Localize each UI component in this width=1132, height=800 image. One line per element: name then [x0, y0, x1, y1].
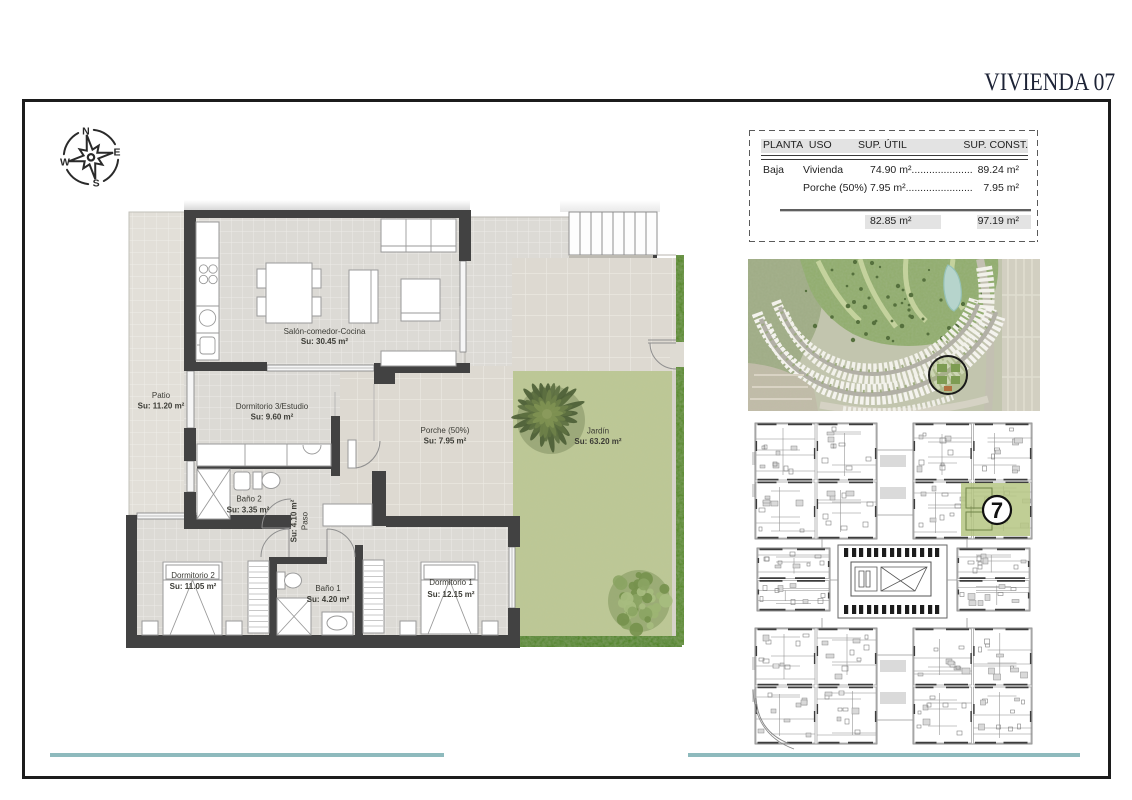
svg-text:Dormitorio 2: Dormitorio 2: [171, 571, 215, 580]
svg-text:Jardín: Jardín: [587, 427, 609, 436]
svg-text:Su: 4.20 m²: Su: 4.20 m²: [307, 595, 350, 604]
svg-text:Baño 1: Baño 1: [315, 584, 341, 593]
svg-text:Su: 11.05 m²: Su: 11.05 m²: [170, 582, 217, 591]
svg-text:Dormitorio 3/Estudio: Dormitorio 3/Estudio: [236, 402, 309, 411]
svg-text:Su: 30.45 m²: Su: 30.45 m²: [301, 337, 348, 346]
svg-text:S: S: [93, 178, 100, 190]
svg-text:Su: 12.15 m²: Su: 12.15 m²: [427, 590, 474, 599]
svg-text:Su: 7.95 m²: Su: 7.95 m²: [424, 437, 467, 446]
svg-text:Salón-comedor-Cocina: Salón-comedor-Cocina: [284, 327, 366, 336]
svg-text:W: W: [60, 157, 70, 169]
svg-text:Su: 9.60 m²: Su: 9.60 m²: [251, 413, 294, 422]
svg-text:Baño 2: Baño 2: [236, 495, 262, 504]
svg-text:Paso: Paso: [301, 511, 310, 530]
svg-text:E: E: [113, 147, 120, 159]
svg-text:N: N: [82, 126, 90, 138]
svg-text:7: 7: [991, 498, 1003, 523]
svg-text:Patio: Patio: [152, 391, 171, 400]
svg-text:Su: 63.20 m²: Su: 63.20 m²: [574, 437, 621, 446]
svg-text:Su: 4.10 m²: Su: 4.10 m²: [290, 499, 299, 542]
svg-text:Su: 11.20 m²: Su: 11.20 m²: [138, 402, 185, 411]
svg-text:Su: 3.35 m²: Su: 3.35 m²: [227, 506, 270, 515]
svg-text:Porche (50%): Porche (50%): [421, 426, 470, 435]
svg-text:Dormitorio 1: Dormitorio 1: [429, 578, 473, 587]
